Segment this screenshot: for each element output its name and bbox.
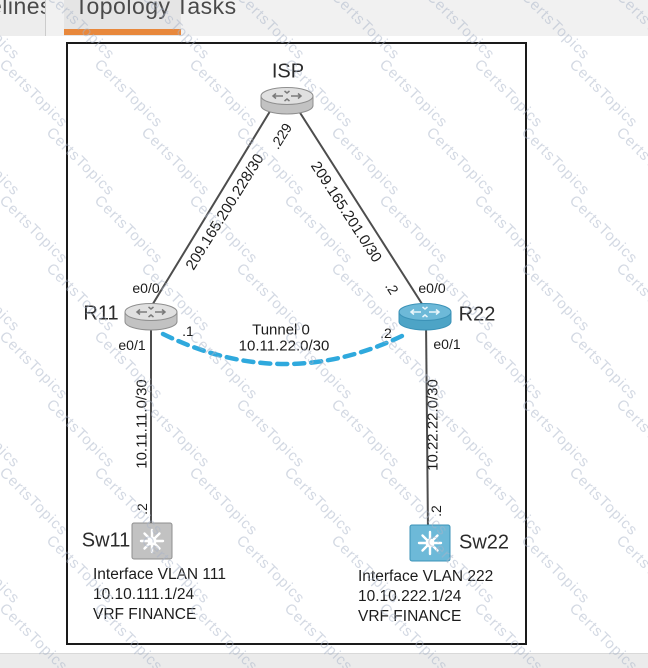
switch-icon-sw11 [131,522,173,565]
tab-tasks-label: Tasks [175,0,236,20]
note-sw22-line2: 10.10.222.1/24 [358,587,493,607]
router-icon-r11 [124,302,178,337]
tab-guidelines-partial[interactable]: elines [0,0,46,36]
note-sw11-line3: VRF FINANCE [93,605,226,625]
note-sw11: Interface VLAN 111 10.10.111.1/24 VRF FI… [93,565,226,625]
router-icon-isp [260,86,314,121]
interface-label-r11-e0-1: e0/1 [118,337,145,353]
bottom-bar [0,653,648,668]
router-icon-r22 [398,302,452,337]
subnet-label-r22-sw22: 10.22.22.0/30 [425,379,442,471]
switch-icon-sw22 [409,524,451,567]
ip-label-tunnel-r11-1: .1 [182,323,194,339]
note-sw11-line2: 10.10.111.1/24 [93,585,226,605]
note-sw11-line1: Interface VLAN 111 [93,565,226,585]
note-sw22-line3: VRF FINANCE [358,607,493,627]
interface-label-r11-e0-0: e0/0 [132,280,159,296]
tunnel-subnet-label: 10.11.22.0/30 [239,338,330,355]
subnet-label-r11-sw11: 10.11.11.0/30 [134,379,151,469]
note-sw22: Interface VLAN 222 10.10.222.1/24 VRF FI… [358,567,493,627]
ip-label-sw22-2: .2 [428,505,444,517]
ip-label-tunnel-r22-2: .2 [380,325,392,341]
node-label-r11: R11 [83,303,118,326]
node-label-r22: R22 [459,304,496,327]
interface-label-r22-e0-0: e0/0 [418,280,445,296]
note-sw22-line1: Interface VLAN 222 [358,567,493,587]
node-label-isp: ISP [272,61,304,84]
tab-bar: elines Topology Tasks [0,0,648,36]
ip-label-sw11-2: .2 [134,503,150,515]
node-label-sw11: Sw11 [82,530,131,553]
tab-tasks[interactable]: Tasks [160,0,252,36]
interface-label-r22-e0-1: e0/1 [433,336,460,352]
tab-topology-label: Topology [74,0,170,20]
tab-guidelines-label: elines [0,0,46,20]
node-label-sw22: Sw22 [459,532,509,555]
exam-simulator-screen: elines Topology Tasks [0,0,648,668]
tunnel-name-label: Tunnel 0 [252,322,310,339]
